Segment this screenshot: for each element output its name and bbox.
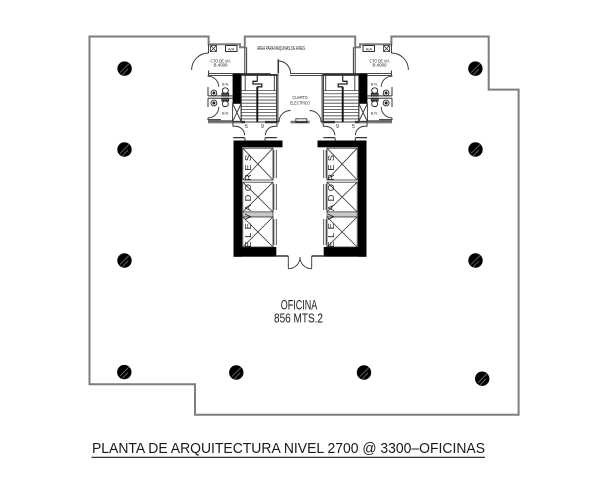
svg-text:PLANTA DE ARQUITECTURA NIVE: PLANTA DE ARQUITECTURA NIVEL 2700 @ 3300… bbox=[92, 441, 485, 457]
svg-text:9: 9 bbox=[261, 124, 264, 130]
svg-text:9: 9 bbox=[336, 124, 339, 130]
svg-text:B.N.: B.N. bbox=[371, 83, 378, 87]
svg-text:ELECTRICO: ELECTRICO bbox=[290, 100, 310, 105]
svg-text:B.4000: B.4000 bbox=[373, 63, 387, 68]
svg-text:B.N.: B.N. bbox=[371, 111, 378, 115]
svg-text:AREA PARA MAQUINAS DE AIRES: AREA PARA MAQUINAS DE AIRES bbox=[257, 46, 305, 52]
svg-text:ELEVADORES: ELEVADORES bbox=[326, 152, 336, 248]
svg-text:B.4000: B.4000 bbox=[214, 63, 228, 68]
svg-text:A/A: A/A bbox=[228, 46, 235, 51]
svg-text:CUARTO: CUARTO bbox=[293, 95, 308, 100]
svg-text:856 MTS.2: 856 MTS.2 bbox=[274, 311, 323, 326]
svg-text:ELEVADORES: ELEVADORES bbox=[243, 152, 253, 248]
svg-text:5: 5 bbox=[245, 124, 248, 130]
svg-text:B.N.: B.N. bbox=[222, 83, 229, 87]
svg-text:5: 5 bbox=[352, 124, 355, 130]
svg-text:B.N.: B.N. bbox=[222, 111, 229, 115]
svg-text:A/A: A/A bbox=[366, 46, 373, 51]
